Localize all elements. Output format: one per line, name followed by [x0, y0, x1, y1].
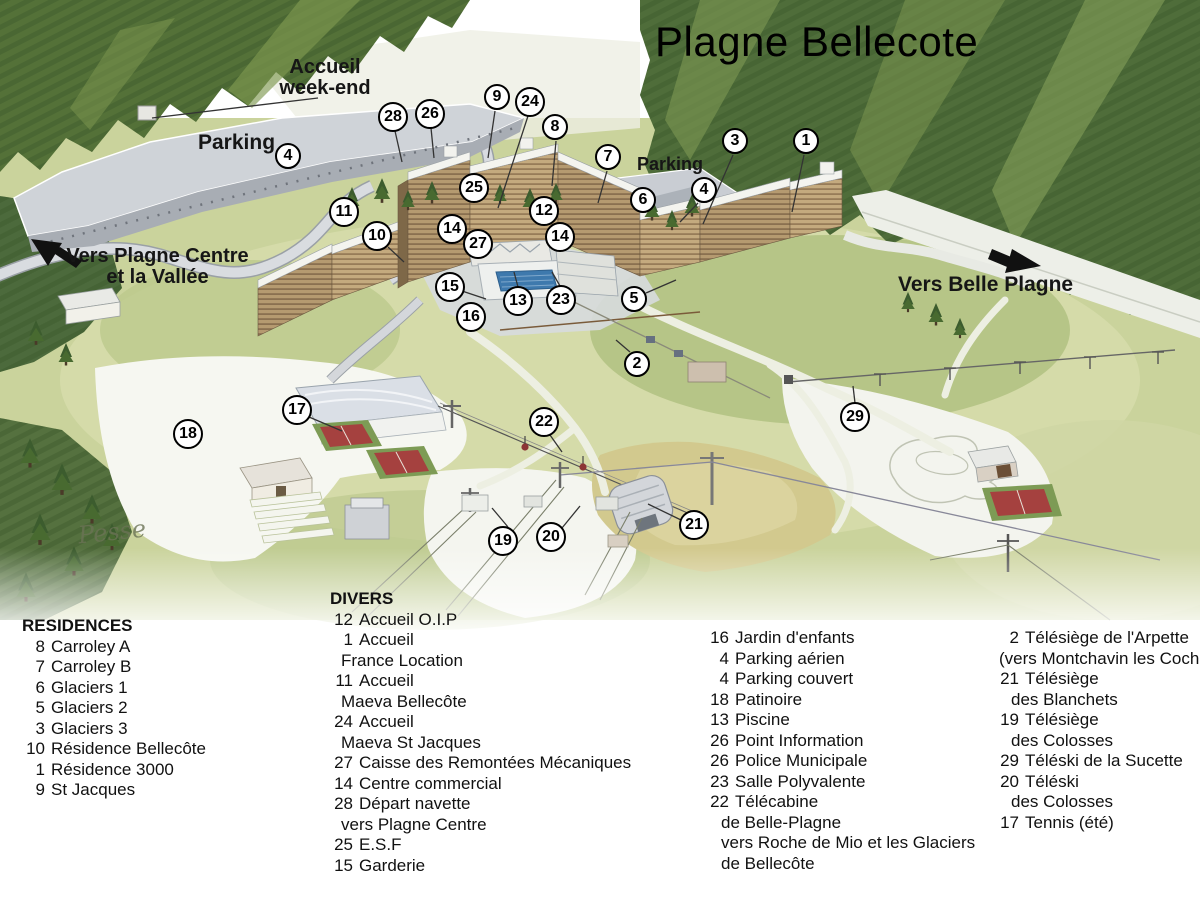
legend-item-number: 17 — [996, 813, 1019, 834]
map-marker-21: 21 — [679, 510, 709, 540]
legend-item-number: 12 — [330, 610, 353, 631]
legend-item: 1Accueil — [330, 630, 631, 651]
legend-item-number: 19 — [996, 710, 1019, 731]
legend-item-label: Jardin d'enfants — [735, 628, 855, 649]
legend-item-number — [312, 651, 335, 672]
legend-item: 1Résidence 3000 — [22, 760, 206, 781]
map-marker-1: 1 — [793, 128, 819, 154]
legend-item-label: Accueil — [359, 671, 414, 692]
legend-item: 27Caisse des Remontées Mécaniques — [330, 753, 631, 774]
legend-item-number — [692, 833, 715, 854]
legend-item-label: de Belle-Plagne — [721, 813, 841, 834]
legend-item-number: 22 — [706, 792, 729, 813]
legend-column-lifts: 2Télésiège de l'Arpette(vers Montchavin … — [996, 628, 1199, 833]
legend-item-number: 7 — [22, 657, 45, 678]
legend-column-divers: DIVERS 12Accueil O.I.P1AccueilFrance Loc… — [330, 589, 631, 876]
legend-item-number: 25 — [330, 835, 353, 856]
legend-item-label: Salle Polyvalente — [735, 772, 865, 793]
legend-item-label: France Location — [341, 651, 463, 672]
legend-heading-residences: RESIDENCES — [22, 616, 206, 637]
legend-item-number — [312, 733, 335, 754]
legend-item-number: 23 — [706, 772, 729, 793]
legend-item: 18Patinoire — [706, 690, 975, 711]
map-marker-4: 4 — [691, 177, 717, 203]
legend-item-label: des Colosses — [1011, 792, 1113, 813]
legend-item-number: 18 — [706, 690, 729, 711]
legend-item-number — [982, 731, 1005, 752]
legend-item-number — [982, 792, 1005, 813]
map-marker-23: 23 — [546, 285, 576, 315]
map-marker-5: 5 — [621, 286, 647, 312]
legend-item: 21Télésiège — [996, 669, 1199, 690]
map-marker-19: 19 — [488, 526, 518, 556]
legend-item-number: 28 — [330, 794, 353, 815]
legend-item-label: Parking couvert — [735, 669, 853, 690]
label-accueil-weekend: Accueil week-end — [240, 57, 410, 99]
legend-item: 26Police Municipale — [706, 751, 975, 772]
map-marker-9: 9 — [484, 84, 510, 110]
legend-item-label: St Jacques — [51, 780, 135, 801]
legend-item-number: 15 — [330, 856, 353, 877]
map-marker-12: 12 — [529, 196, 559, 226]
legend-item: vers Plagne Centre — [312, 815, 631, 836]
legend-item-label: Police Municipale — [735, 751, 867, 772]
map-marker-18: 18 — [173, 419, 203, 449]
map-marker-7: 7 — [595, 144, 621, 170]
map-marker-24: 24 — [515, 87, 545, 117]
legend-item: des Colosses — [982, 731, 1199, 752]
legend-item: 25E.S.F — [330, 835, 631, 856]
legend-item-label: Glaciers 2 — [51, 698, 128, 719]
legend-item-number: 26 — [706, 751, 729, 772]
legend-item: 10Résidence Bellecôte — [22, 739, 206, 760]
legend-item-number: 5 — [22, 698, 45, 719]
legend-item: des Blanchets — [982, 690, 1199, 711]
map-marker-17: 17 — [282, 395, 312, 425]
legend-item: 19Télésiège — [996, 710, 1199, 731]
legend-item-label: Télécabine — [735, 792, 818, 813]
legend-item-number: 4 — [706, 649, 729, 670]
legend-item-label: de Bellecôte — [721, 854, 815, 875]
legend-item: 22Télécabine — [706, 792, 975, 813]
page-title: Plagne Bellecote — [655, 18, 978, 66]
legend-item: 24Accueil — [330, 712, 631, 733]
legend-item: 11Accueil — [330, 671, 631, 692]
legend-item-number: 6 — [22, 678, 45, 699]
legend-item: 6Glaciers 1 — [22, 678, 206, 699]
map-marker-8: 8 — [542, 114, 568, 140]
legend-item: des Colosses — [982, 792, 1199, 813]
legend-item-number: 13 — [706, 710, 729, 731]
map-marker-15: 15 — [435, 272, 465, 302]
legend-item: 23Salle Polyvalente — [706, 772, 975, 793]
legend-item-label: Résidence Bellecôte — [51, 739, 206, 760]
legend-item-label: des Blanchets — [1011, 690, 1118, 711]
legend-item-number: 24 — [330, 712, 353, 733]
map-marker-26: 26 — [415, 99, 445, 129]
legend-item-label: vers Roche de Mio et les Glaciers — [721, 833, 975, 854]
map-marker-3: 3 — [722, 128, 748, 154]
legend-item-number: 27 — [330, 753, 353, 774]
legend-item-number — [692, 813, 715, 834]
legend-item: 26Point Information — [706, 731, 975, 752]
legend-item-number — [982, 690, 1005, 711]
legend-item: 20Téléski — [996, 772, 1199, 793]
legend-item-number: 2 — [996, 628, 1019, 649]
legend-item-label: Caisse des Remontées Mécaniques — [359, 753, 631, 774]
legend-item: 3Glaciers 3 — [22, 719, 206, 740]
legend-item: 5Glaciers 2 — [22, 698, 206, 719]
legend-item: France Location — [312, 651, 631, 672]
legend-item-number: 21 — [996, 669, 1019, 690]
legend-item-number — [312, 692, 335, 713]
label-vers-belle-plagne: Vers Belle Plagne — [898, 273, 1073, 297]
legend-column-residences: RESIDENCES 8Carroley A7Carroley B6Glacie… — [22, 616, 206, 801]
legend-item: (vers Montchavin les Coch — [970, 649, 1199, 670]
map-marker-13: 13 — [503, 286, 533, 316]
legend-item-label: Patinoire — [735, 690, 802, 711]
legend-item: 13Piscine — [706, 710, 975, 731]
legend-item-label: Télésiège — [1025, 669, 1099, 690]
legend-item-label: vers Plagne Centre — [341, 815, 487, 836]
legend-column-services: 16Jardin d'enfants4Parking aérien4Parkin… — [706, 628, 975, 874]
legend-item-label: Téléski — [1025, 772, 1079, 793]
map-marker-25: 25 — [459, 173, 489, 203]
map-marker-29: 29 — [840, 402, 870, 432]
legend-item: Maeva St Jacques — [312, 733, 631, 754]
legend-item-label: Accueil — [359, 630, 414, 651]
legend-item-number — [312, 815, 335, 836]
legend-item-label: Accueil O.I.P — [359, 610, 457, 631]
resort-map-illustration — [0, 0, 1200, 640]
legend-item-number: 9 — [22, 780, 45, 801]
legend-item: 14Centre commercial — [330, 774, 631, 795]
legend-item: 12Accueil O.I.P — [330, 610, 631, 631]
legend-item-label: Point Information — [735, 731, 864, 752]
legend-item: 4Parking couvert — [706, 669, 975, 690]
legend-item: vers Roche de Mio et les Glaciers — [692, 833, 975, 854]
map-marker-6: 6 — [630, 187, 656, 213]
label-parking-west: Parking — [198, 131, 275, 155]
legend-item-label: (vers Montchavin les Coch — [999, 649, 1199, 670]
legend-item-number: 11 — [330, 671, 353, 692]
legend-item-label: des Colosses — [1011, 731, 1113, 752]
legend-item: 17Tennis (été) — [996, 813, 1199, 834]
legend-item-label: Maeva St Jacques — [341, 733, 481, 754]
legend-item-number: 26 — [706, 731, 729, 752]
legend-item-label: Accueil — [359, 712, 414, 733]
legend-item-label: Télésiège — [1025, 710, 1099, 731]
legend-heading-divers: DIVERS — [330, 589, 631, 610]
legend-item-number: 20 — [996, 772, 1019, 793]
legend-item-label: Piscine — [735, 710, 790, 731]
legend-item: 15Garderie — [330, 856, 631, 877]
legend-item-label: Télésiège de l'Arpette — [1025, 628, 1189, 649]
legend-item-number: 10 — [22, 739, 45, 760]
map-marker-11: 11 — [329, 197, 359, 227]
legend-item-number — [692, 854, 715, 875]
legend-item-label: Départ navette — [359, 794, 471, 815]
legend-item: 16Jardin d'enfants — [706, 628, 975, 649]
legend-item-label: Téléski de la Sucette — [1025, 751, 1183, 772]
map-marker-14: 14 — [545, 222, 575, 252]
resort-map-page: Plagne Bellecote Accueil week-end Parkin… — [0, 0, 1200, 900]
legend-item-label: Glaciers 3 — [51, 719, 128, 740]
legend-item: 28Départ navette — [330, 794, 631, 815]
legend-item: 2Télésiège de l'Arpette — [996, 628, 1199, 649]
legend-item-number: 1 — [22, 760, 45, 781]
legend-item: Maeva Bellecôte — [312, 692, 631, 713]
legend-item-label: Tennis (été) — [1025, 813, 1114, 834]
map-marker-4: 4 — [275, 143, 301, 169]
legend-item: 9St Jacques — [22, 780, 206, 801]
legend-item-label: Parking aérien — [735, 649, 845, 670]
legend-item: 29Téléski de la Sucette — [996, 751, 1199, 772]
legend-item-label: Maeva Bellecôte — [341, 692, 467, 713]
legend-item: 4Parking aérien — [706, 649, 975, 670]
map-marker-10: 10 — [362, 221, 392, 251]
map-marker-27: 27 — [463, 229, 493, 259]
legend-item-label: Carroley A — [51, 637, 130, 658]
legend-item-number: 4 — [706, 669, 729, 690]
legend-item: 7Carroley B — [22, 657, 206, 678]
legend-item-label: Garderie — [359, 856, 425, 877]
legend-item-number: 3 — [22, 719, 45, 740]
legend-item-number: 1 — [330, 630, 353, 651]
map-marker-28: 28 — [378, 102, 408, 132]
legend-item-number: 29 — [996, 751, 1019, 772]
legend-item-number: 8 — [22, 637, 45, 658]
legend-item: de Bellecôte — [692, 854, 975, 875]
label-vers-plagne-centre: Vers Plagne Centre et la Vallée — [60, 246, 255, 288]
legend-item-label: Résidence 3000 — [51, 760, 174, 781]
map-marker-20: 20 — [536, 522, 566, 552]
legend-item-number: 14 — [330, 774, 353, 795]
legend-item-label: E.S.F — [359, 835, 402, 856]
label-parking-east: Parking — [637, 154, 703, 175]
legend-item-label: Carroley B — [51, 657, 131, 678]
legend-item: 8Carroley A — [22, 637, 206, 658]
legend-item-number — [970, 649, 993, 670]
legend-item-label: Glaciers 1 — [51, 678, 128, 699]
legend-item-label: Centre commercial — [359, 774, 502, 795]
map-marker-2: 2 — [624, 351, 650, 377]
legend-item: de Belle-Plagne — [692, 813, 975, 834]
map-marker-22: 22 — [529, 407, 559, 437]
map-marker-16: 16 — [456, 302, 486, 332]
legend-item-number: 16 — [706, 628, 729, 649]
